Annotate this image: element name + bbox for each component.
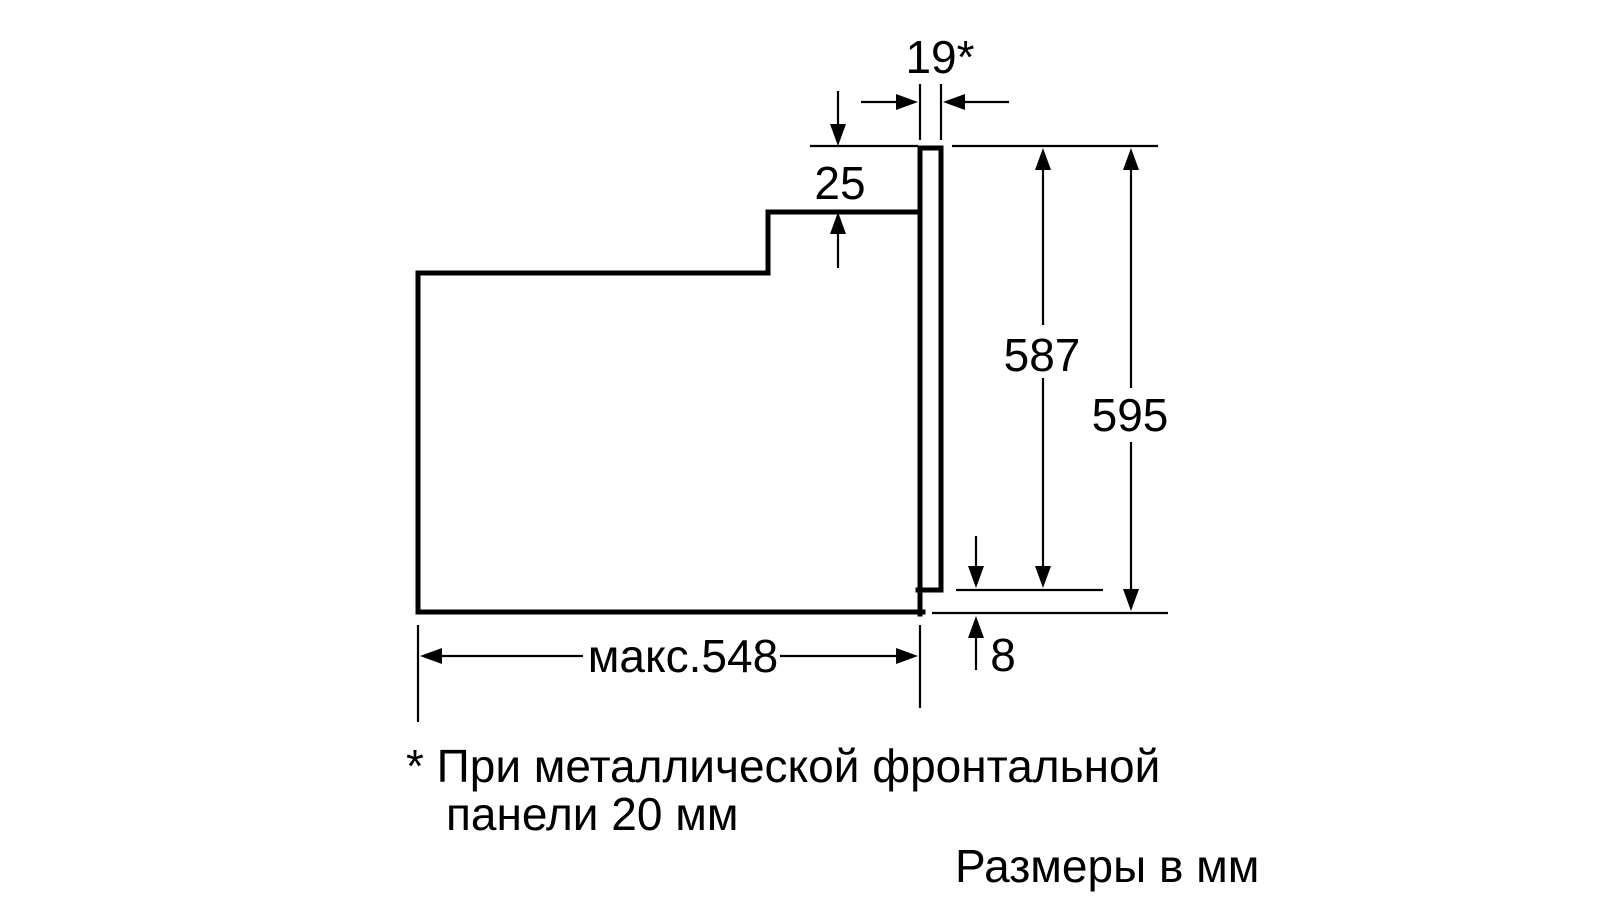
dim-595-arrow-up-icon	[1123, 148, 1139, 170]
dim-label-25: 25	[814, 157, 865, 209]
oven-body-outline	[418, 212, 923, 612]
dim-label-548: макс.548	[588, 630, 778, 682]
dim-548: макс.548	[418, 625, 920, 722]
dim-label-587: 587	[1004, 329, 1081, 381]
dim-25-arrow-down-icon	[830, 124, 846, 146]
dim-587-arrow-up-icon	[1035, 148, 1051, 170]
dim-25-arrow-up-icon	[830, 212, 846, 234]
dim-587: 587	[956, 148, 1103, 590]
footnote: * При металлической фронтальной панели 2…	[406, 740, 1160, 840]
units-caption: Размеры в мм	[955, 840, 1259, 892]
dim-label-8: 8	[990, 629, 1016, 681]
footnote-line1: * При металлической фронтальной	[406, 740, 1160, 792]
dim-587-arrow-down-icon	[1035, 566, 1051, 588]
dim-595-arrow-down-icon	[1123, 589, 1139, 611]
oven-body	[418, 212, 923, 612]
dim-19-arrow-right-icon	[896, 94, 918, 110]
front-panel	[918, 148, 941, 614]
dim-25: 25	[810, 91, 918, 268]
dim-label-19: 19*	[905, 31, 974, 83]
dim-548-arrow-right-icon	[896, 648, 918, 664]
dim-label-595: 595	[1092, 389, 1169, 441]
dim-548-arrow-left-icon	[420, 648, 442, 664]
footnote-line2: панели 20 мм	[446, 788, 738, 840]
front-panel-outline	[918, 148, 941, 614]
diagram-canvas: 19* 25 587	[0, 0, 1600, 900]
dim-19-arrow-left-icon	[943, 94, 965, 110]
dim-19: 19*	[861, 31, 1009, 140]
dim-8-arrow-up-icon	[968, 616, 984, 638]
oven-dimension-drawing: 19* 25 587	[0, 0, 1600, 900]
dim-8-arrow-down-icon	[968, 566, 984, 588]
dim-8: 8	[968, 536, 1016, 681]
